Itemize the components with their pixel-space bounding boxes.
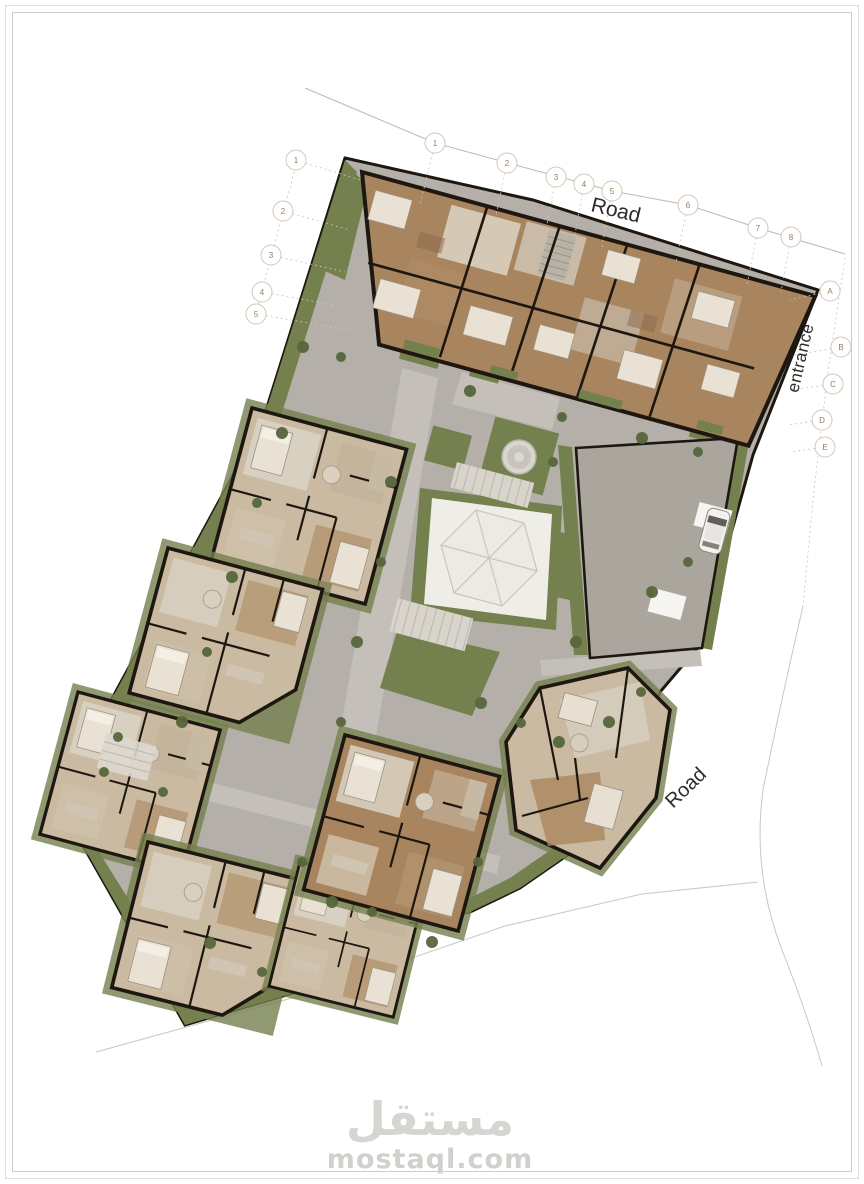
grid-bubble-left-4: 4 (252, 282, 272, 302)
watermark-arabic: مستقل (327, 1096, 533, 1142)
watermark-latin: mostaql.com (327, 1146, 533, 1173)
central-plaza (424, 498, 552, 620)
svg-text:5: 5 (610, 187, 615, 196)
svg-text:B: B (838, 343, 843, 352)
svg-text:1: 1 (433, 139, 438, 148)
grid-bubble-top-6: 6 (678, 195, 698, 215)
svg-text:E: E (822, 443, 827, 452)
grid-bubble-top-3: 3 (546, 167, 566, 187)
grid-bubble-right-2: B (831, 337, 851, 357)
svg-text:7: 7 (756, 224, 761, 233)
svg-text:1: 1 (294, 156, 299, 165)
site-plan-drawing: 1 2 3 4 5 6 7 8 1 2 3 4 5 A B C D E Road… (0, 0, 864, 1184)
fountain-icon (502, 440, 536, 474)
grid-bubble-left-3: 3 (261, 245, 281, 265)
svg-text:8: 8 (789, 233, 794, 242)
watermark: مستقل mostaql.com (327, 1096, 533, 1173)
grid-bubble-top-2: 2 (497, 153, 517, 173)
drawing-sheet: 1 2 3 4 5 6 7 8 1 2 3 4 5 A B C D E Road… (0, 0, 864, 1184)
grid-bubble-top-4: 4 (574, 174, 594, 194)
svg-text:3: 3 (269, 251, 274, 260)
svg-text:2: 2 (281, 207, 286, 216)
road-label-bottom: Road (661, 763, 711, 812)
grid-bubble-right-5: E (815, 437, 835, 457)
grid-bubble-left-5: 5 (246, 304, 266, 324)
svg-text:3: 3 (554, 173, 559, 182)
grid-bubble-right-1: A (820, 281, 840, 301)
grid-bubble-left-1: 1 (286, 150, 306, 170)
svg-text:A: A (827, 287, 833, 296)
grid-bubble-right-4: D (812, 410, 832, 430)
svg-text:C: C (830, 380, 836, 389)
grid-bubble-left-2: 2 (273, 201, 293, 221)
svg-text:4: 4 (582, 180, 587, 189)
grid-bubble-top-7: 7 (748, 218, 768, 238)
grid-bubble-right-3: C (823, 374, 843, 394)
grid-bubble-top-1: 1 (425, 133, 445, 153)
svg-text:2: 2 (505, 159, 510, 168)
villa-7 (506, 668, 670, 868)
svg-text:6: 6 (686, 201, 691, 210)
grid-bubble-top-8: 8 (781, 227, 801, 247)
svg-text:5: 5 (254, 310, 259, 319)
svg-text:4: 4 (260, 288, 265, 297)
svg-text:D: D (819, 416, 825, 425)
